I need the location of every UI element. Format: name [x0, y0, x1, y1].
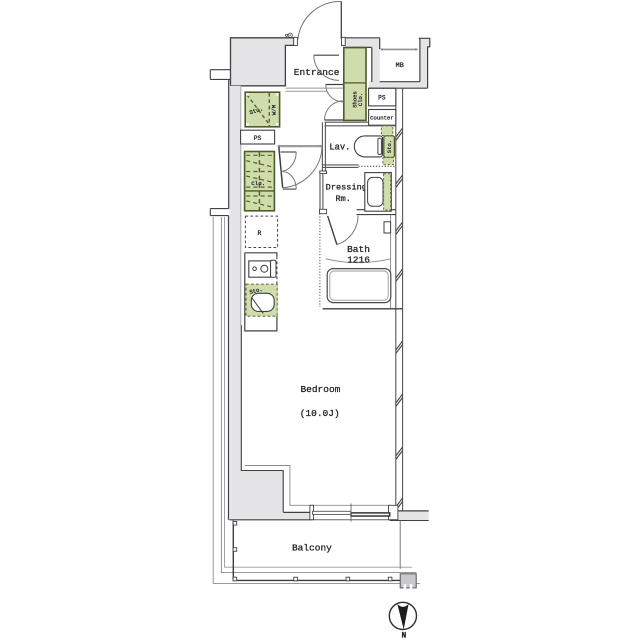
svg-text:Clo.: Clo. — [357, 93, 364, 106]
svg-text:Bath: Bath — [347, 244, 370, 255]
svg-text:Bedroom: Bedroom — [300, 384, 340, 395]
svg-text:Clo.: Clo. — [251, 180, 265, 187]
svg-text:Balcony: Balcony — [292, 542, 332, 553]
svg-text:N: N — [401, 632, 406, 640]
svg-text:Dressing: Dressing — [326, 183, 367, 193]
svg-text:Counter: Counter — [370, 115, 394, 122]
svg-text:PS: PS — [254, 135, 262, 142]
svg-text:Rm.: Rm. — [335, 194, 350, 204]
svg-text:Sto.: Sto. — [386, 140, 393, 153]
svg-text:Entrance: Entrance — [294, 67, 340, 78]
svg-text:(10.0J): (10.0J) — [300, 408, 340, 419]
svg-text:1216: 1216 — [347, 255, 370, 266]
svg-text:PS: PS — [378, 95, 386, 102]
svg-text:W/M: W/M — [271, 104, 278, 115]
svg-text:Lav.: Lav. — [329, 142, 350, 152]
svg-text:R: R — [257, 230, 261, 237]
svg-text:MB: MB — [396, 62, 404, 70]
